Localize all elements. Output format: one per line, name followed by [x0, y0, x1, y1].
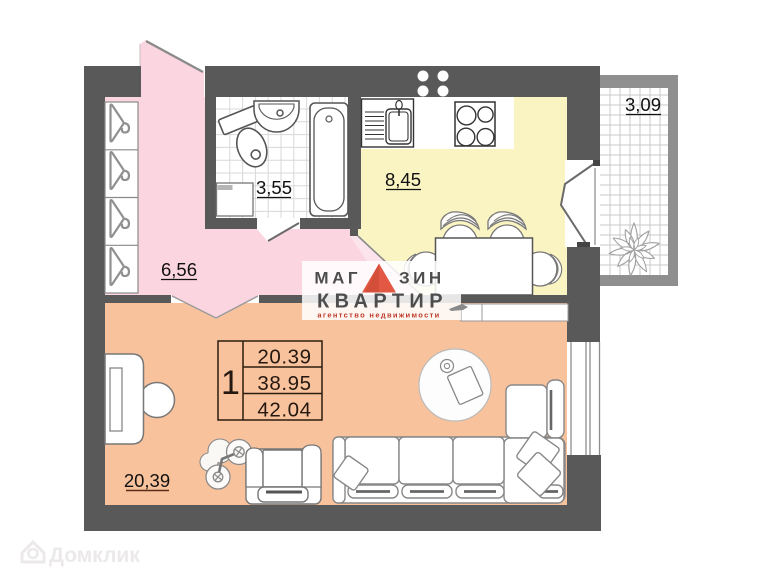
svg-text:КВАРТИР: КВАРТИР [317, 291, 448, 313]
svg-text:ЗИН: ЗИН [399, 269, 445, 288]
svg-text:агентство недвижимости: агентство недвижимости [317, 311, 440, 320]
svg-text:20,39: 20,39 [124, 470, 170, 491]
svg-text:1: 1 [221, 364, 240, 402]
svg-text:3,55: 3,55 [256, 177, 292, 198]
svg-text:38.95: 38.95 [257, 372, 311, 395]
svg-text:42.04: 42.04 [257, 399, 311, 422]
svg-text:МАГ: МАГ [314, 269, 361, 288]
svg-text:Домклик: Домклик [49, 544, 140, 567]
svg-text:6,56: 6,56 [161, 259, 197, 280]
svg-text:20.39: 20.39 [257, 346, 311, 369]
svg-text:8,45: 8,45 [385, 169, 421, 190]
svg-text:3,09: 3,09 [625, 94, 661, 115]
